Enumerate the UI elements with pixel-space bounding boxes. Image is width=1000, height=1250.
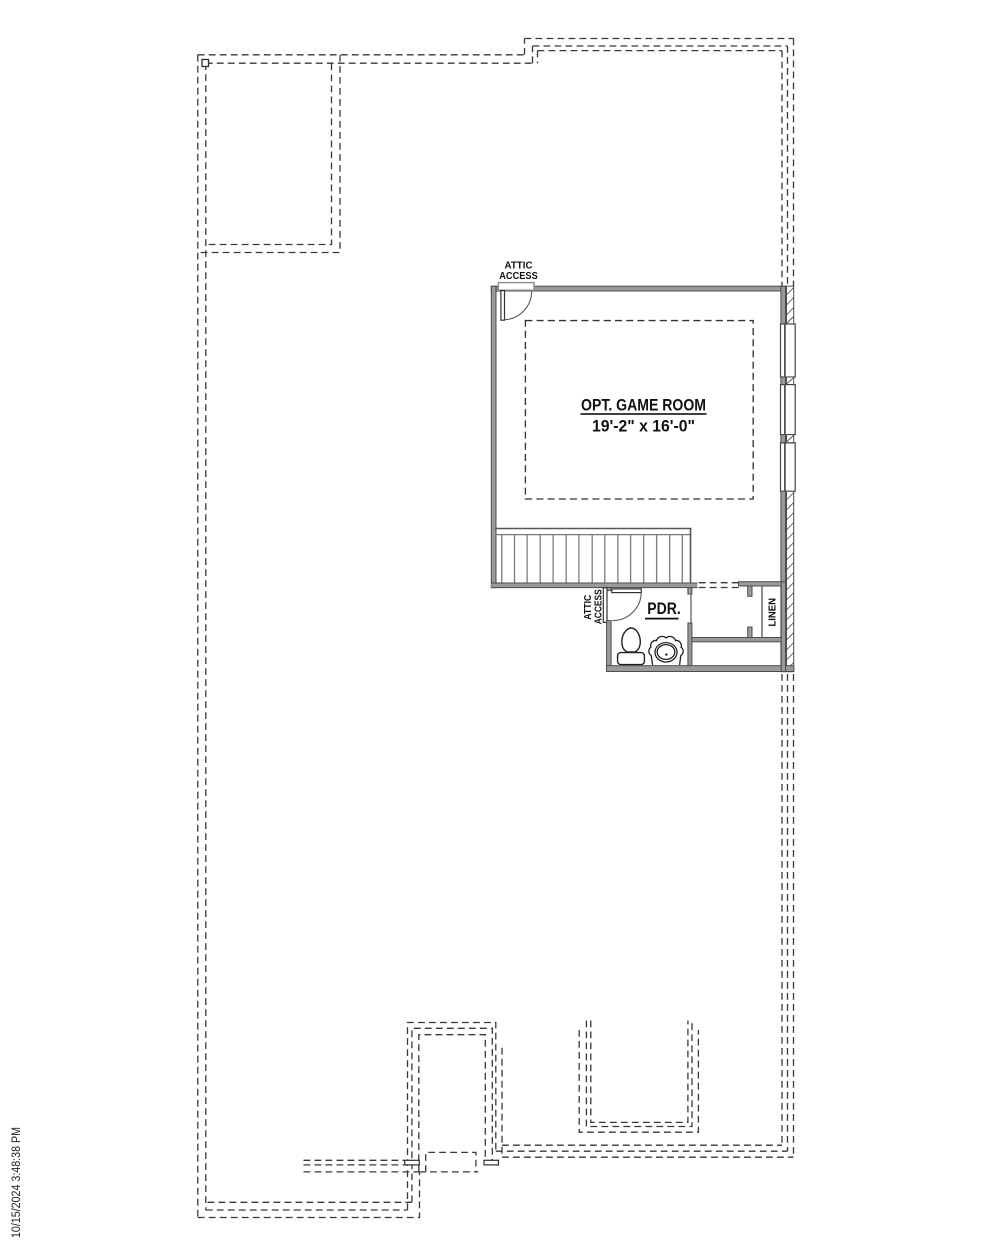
svg-text:LINEN: LINEN (768, 598, 779, 627)
svg-text:19'-2" x 16'-0": 19'-2" x 16'-0" (592, 417, 695, 436)
svg-text:10/15/2024 3:48:38 PM: 10/15/2024 3:48:38 PM (9, 1127, 23, 1238)
svg-text:ACCESS: ACCESS (594, 589, 605, 624)
svg-text:OPT. GAME ROOM: OPT. GAME ROOM (581, 396, 706, 415)
svg-text:ACCESS: ACCESS (499, 271, 538, 282)
svg-text:ATTIC: ATTIC (505, 261, 533, 272)
svg-text:PDR.: PDR. (647, 599, 681, 618)
svg-text:ATTIC: ATTIC (583, 595, 594, 620)
